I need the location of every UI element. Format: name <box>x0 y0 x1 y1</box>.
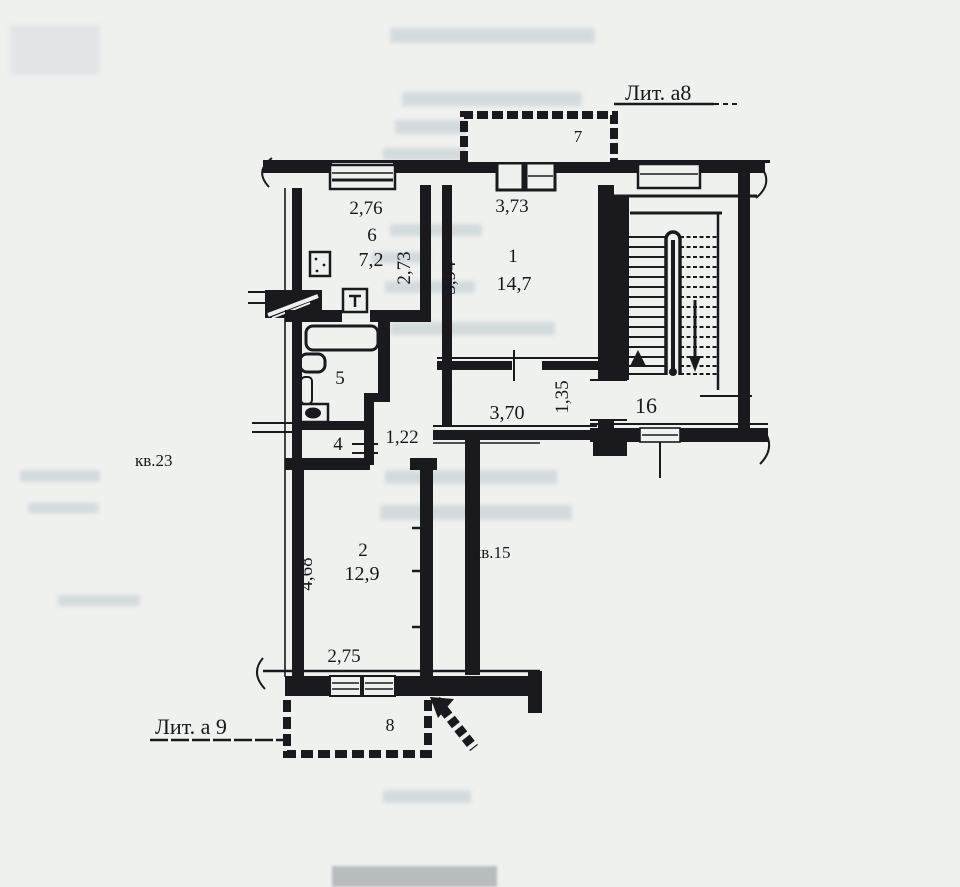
scanner-edge-band <box>332 866 497 887</box>
room-4-number-label: 4 <box>333 434 343 455</box>
room-6-number-label: 6 <box>367 225 377 246</box>
room-2-number-label: 2 <box>358 540 368 561</box>
corridor-length-dim: 3,70 <box>490 402 525 424</box>
room-2-width-dim: 2,75 <box>327 646 360 667</box>
left-party-wall <box>248 158 304 678</box>
room-3-corridor-walls <box>433 380 627 456</box>
balcony-8 <box>287 700 428 754</box>
balcony-8-number-label: 8 <box>386 715 395 735</box>
kitchen-width-dim: 2,76 <box>349 198 382 219</box>
room-2-area-label: 12,9 <box>345 563 380 585</box>
room-1-area-label: 14,7 <box>497 273 532 295</box>
corridor-width-dim: 1,35 <box>552 380 573 413</box>
balcony-door-window <box>497 163 555 190</box>
room-1-width-dim: 3,73 <box>495 196 528 217</box>
kitchen-depth-dim: 2,73 <box>394 251 415 284</box>
lit-a8-label: Лит. а8 <box>625 80 691 105</box>
hall-width-dim: 1,22 <box>385 427 418 448</box>
apt-15-label: кв.15 <box>473 543 511 562</box>
stairwell-window <box>638 164 700 188</box>
apt-23-label: кв.23 <box>135 451 173 470</box>
floor-plan-drawing: Лит. а8 2,76 6 7,2 2,73 <box>0 0 960 887</box>
stairwell-number-label: 16 <box>635 393 657 418</box>
room-5-number-label: 5 <box>335 368 345 389</box>
balcony-7 <box>464 114 614 162</box>
lit-a9-label: Лит. а 9 <box>155 714 227 739</box>
room-3-number-label: 3 <box>443 380 453 401</box>
balcony-7-number-label: 7 <box>574 127 583 146</box>
room-2-depth-dim: 4,68 <box>296 557 317 590</box>
room-1-number-label: 1 <box>508 246 518 267</box>
kitchen-window <box>330 165 395 189</box>
room-6-area-label: 7,2 <box>359 249 384 271</box>
room-1-depth-dim: 3,94 <box>439 261 460 295</box>
scanned-floor-plan-page: Лит. а8 2,76 6 7,2 2,73 <box>0 0 960 887</box>
